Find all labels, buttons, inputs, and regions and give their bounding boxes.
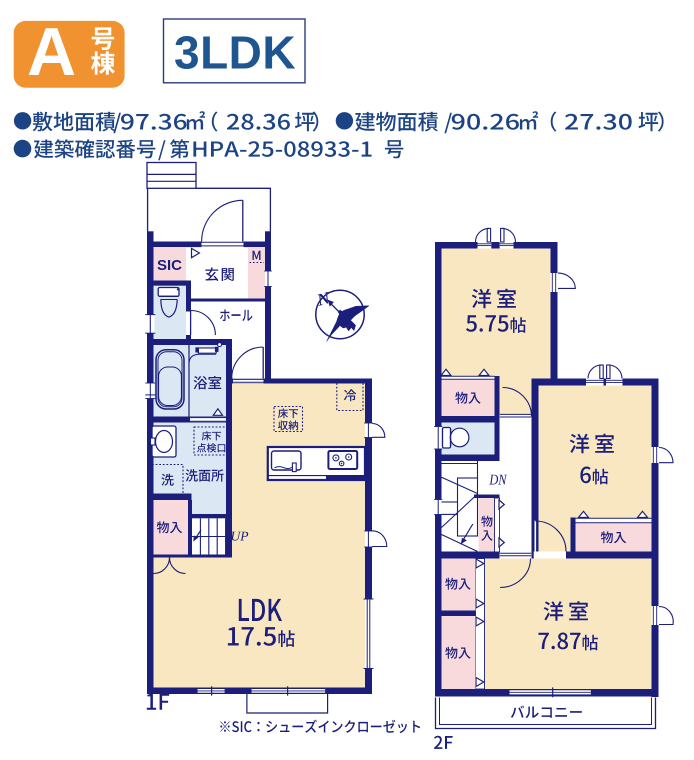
svg-text:A: A [27, 14, 76, 90]
svg-text:SIC: SIC [157, 257, 182, 274]
svg-text:3LDK: 3LDK [174, 27, 296, 79]
